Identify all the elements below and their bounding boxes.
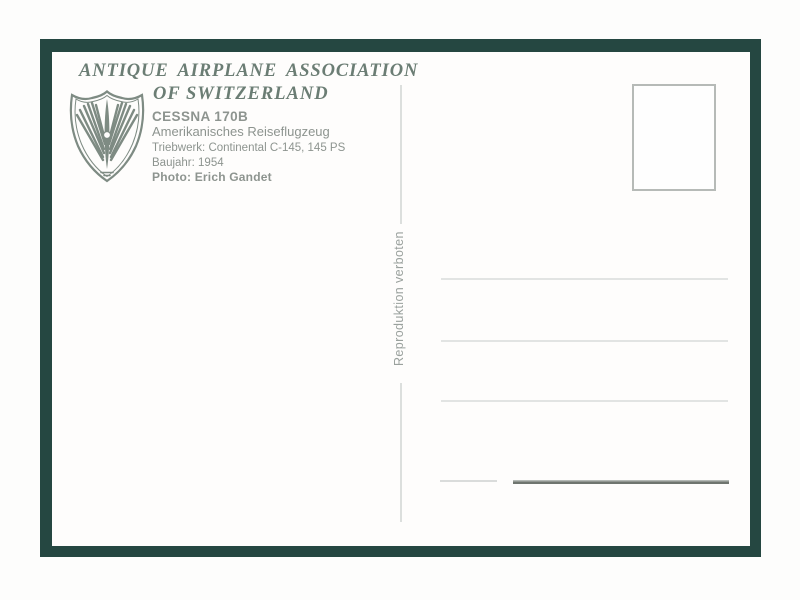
center-divider-bottom (400, 383, 402, 522)
aircraft-engine: Triebwerk: Continental C-145, 145 PS (152, 142, 345, 155)
winged-propeller-shield-icon (65, 88, 149, 186)
address-line-3 (441, 400, 728, 402)
postcard-back: ANTIQUE AIRPLANE ASSOCIATION OF SWITZERL… (52, 52, 750, 546)
reproduction-forbidden-note: Reproduktion verboten (392, 230, 409, 368)
aircraft-year: Baujahr: 1954 (152, 157, 345, 170)
aircraft-details: CESSNA 170B Amerikanisches Reiseflugzeug… (152, 109, 345, 185)
center-divider-top (400, 85, 402, 224)
association-title-line1: ANTIQUE AIRPLANE ASSOCIATION (79, 61, 418, 82)
address-line-2 (441, 340, 728, 342)
aircraft-model: CESSNA 170B (152, 109, 345, 124)
aircraft-description: Amerikanisches Reiseflugzeug (152, 125, 345, 140)
stamp-box (632, 84, 716, 191)
address-line-1 (441, 278, 728, 280)
bottom-signature-line (513, 480, 729, 484)
photo-credit: Photo: Erich Gandet (152, 171, 345, 184)
postcard-border-frame: ANTIQUE AIRPLANE ASSOCIATION OF SWITZERL… (40, 39, 761, 557)
association-title-line2: OF SWITZERLAND (153, 84, 329, 105)
bottom-short-line (440, 480, 497, 482)
